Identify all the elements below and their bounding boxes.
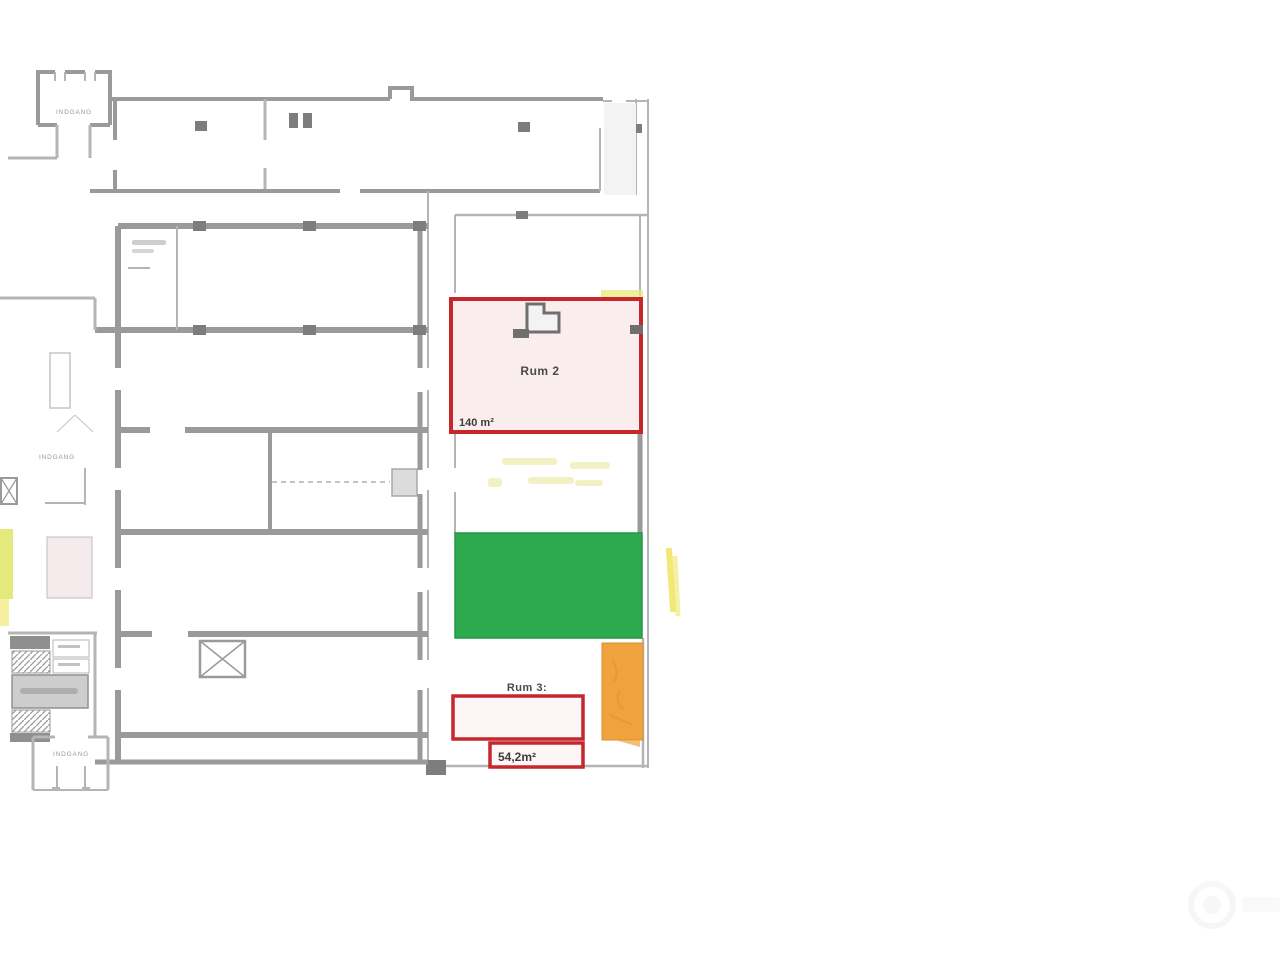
stairwell (8, 633, 97, 742)
rum3-room: Rum 3: 54,2m² (453, 682, 583, 767)
rum2-area: 140 m² (459, 417, 494, 429)
entrance-label-middle: INDGANG (39, 454, 75, 461)
pink-room (47, 537, 92, 598)
left-marker-highlight (0, 529, 13, 626)
rum2-room: Rum 2 140 m² (451, 290, 643, 432)
watermark-logo (1191, 884, 1280, 926)
shaft-x-box (200, 641, 245, 677)
yellow-streak (601, 290, 643, 298)
rum2-label: Rum 2 (520, 364, 559, 378)
entrance-label-bottom: INDGANG (53, 751, 89, 758)
rum3-area: 54,2m² (498, 750, 536, 764)
orange-area (602, 643, 643, 747)
small-x-box (1, 478, 17, 504)
faint-scribbles (488, 458, 610, 487)
yellow-marker-strokes (666, 548, 681, 616)
entrance-label-top: INDGANG (56, 109, 92, 116)
floorplan-page: Rum 2 140 m² Rum 3: 54,2m² INDGANG INDGA… (0, 0, 1280, 960)
rum3-outline-upper (453, 696, 583, 739)
green-area (455, 533, 642, 638)
rum3-label: Rum 3: (507, 682, 547, 694)
floorplan-svg: Rum 2 140 m² Rum 3: 54,2m² INDGANG INDGA… (0, 0, 1280, 960)
